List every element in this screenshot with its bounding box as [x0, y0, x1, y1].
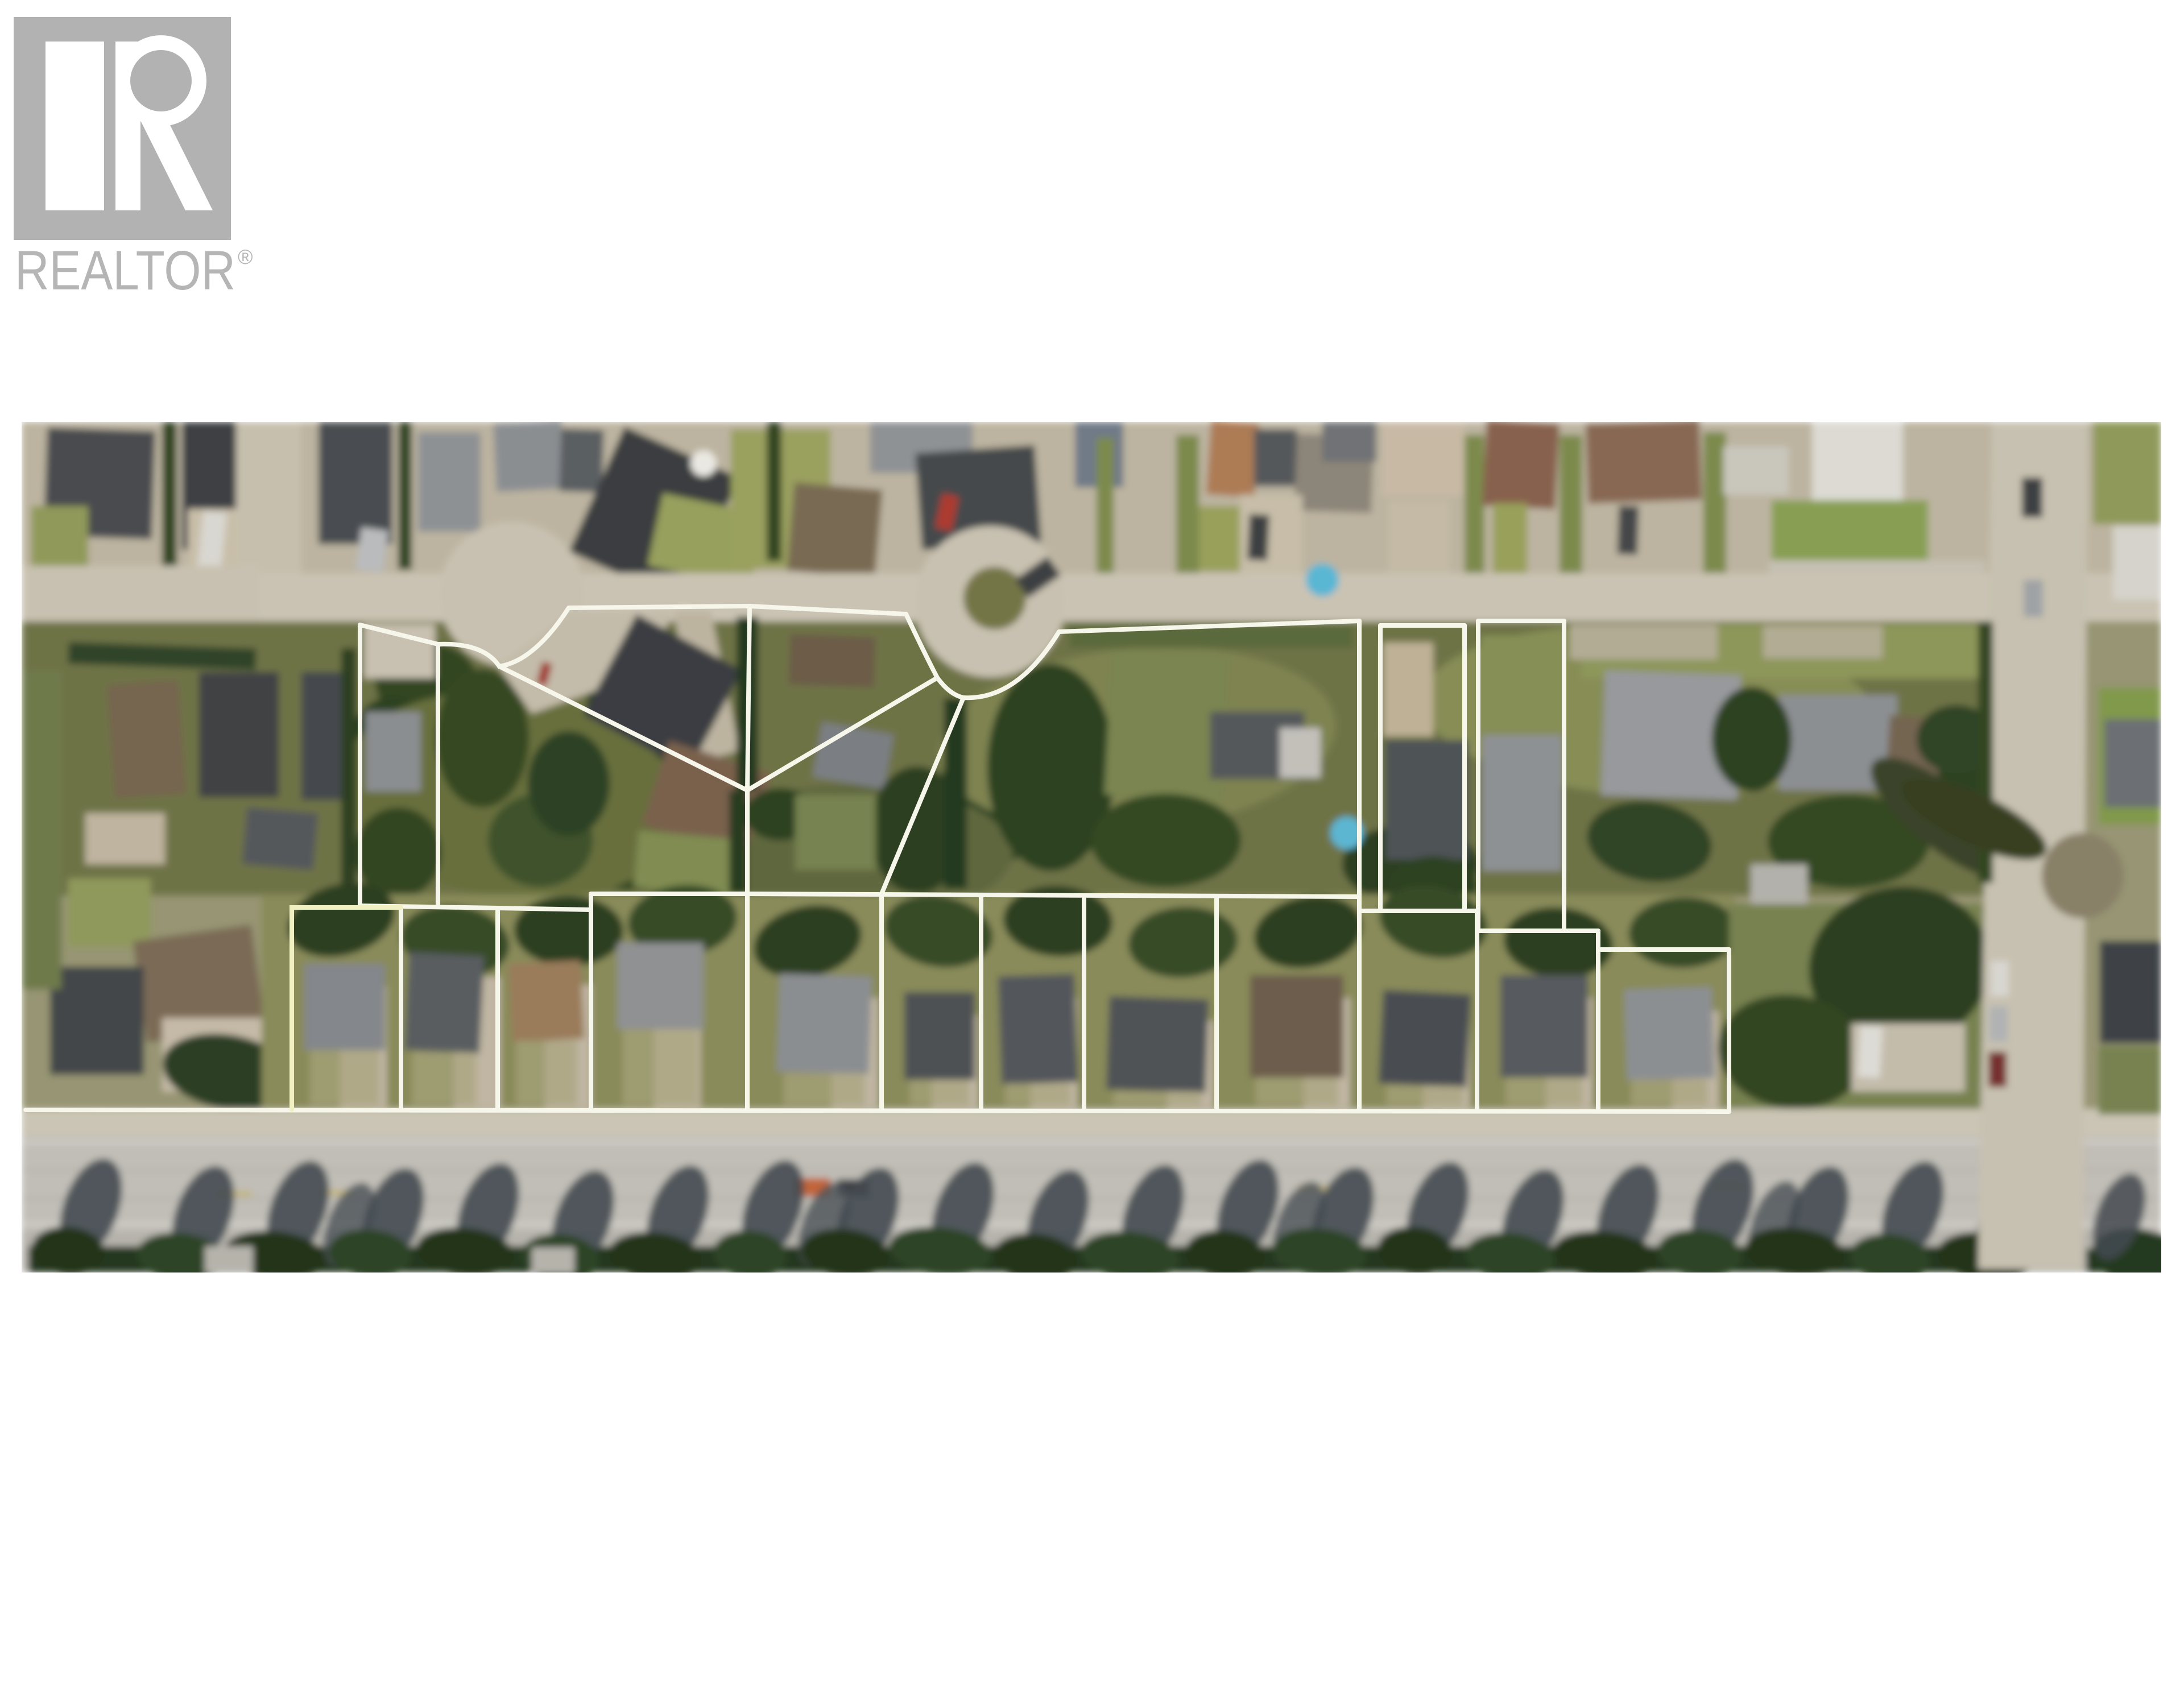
svg-text:®: ® [238, 245, 253, 268]
svg-text:REALTOR: REALTOR [15, 239, 235, 301]
